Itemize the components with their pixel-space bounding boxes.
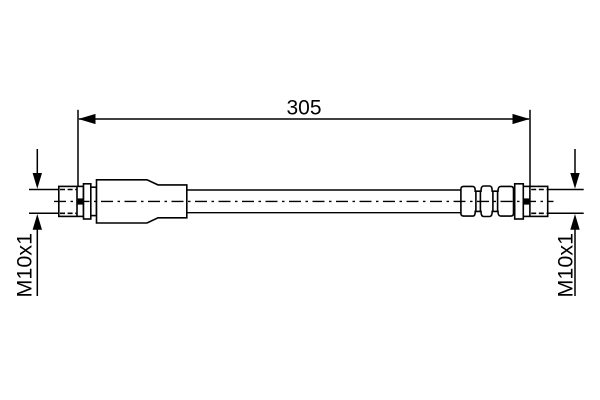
svg-text:305: 305 (286, 97, 321, 120)
svg-text:M10x1: M10x1 (13, 233, 37, 298)
svg-text:M10x1: M10x1 (553, 233, 577, 298)
